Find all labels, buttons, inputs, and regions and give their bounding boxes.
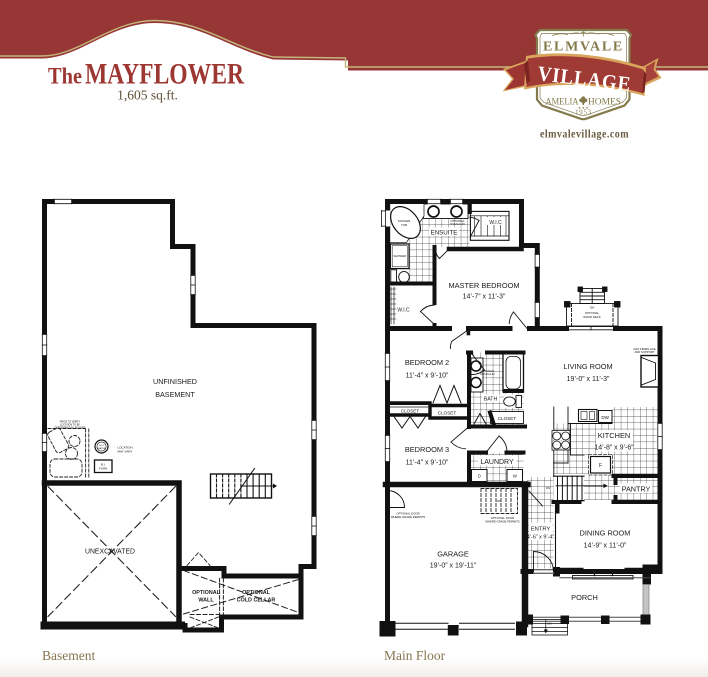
svg-text:COLD CELLAR: COLD CELLAR — [237, 598, 276, 604]
svg-text:4’-6” x 9’-4”: 4’-6” x 9’-4” — [527, 535, 554, 541]
svg-text:DN: DN — [497, 499, 501, 503]
svg-text:UNEXCAVATED: UNEXCAVATED — [85, 547, 135, 556]
svg-text:19’-0” x 19’-11”: 19’-0” x 19’-11” — [430, 563, 477, 570]
svg-text:LIVING ROOM: LIVING ROOM — [563, 362, 612, 371]
svg-text:14’-9” x 11’-0”: 14’-9” x 11’-0” — [584, 543, 627, 550]
svg-text:DW: DW — [601, 415, 609, 420]
svg-text:KITCHEN: KITCHEN — [598, 431, 630, 440]
svg-text:11’-4” x 9’-10”: 11’-4” x 9’-10” — [406, 460, 449, 467]
svg-text:AND SUPPORT: AND SUPPORT — [634, 350, 654, 354]
svg-text:ROUGH-IN: ROUGH-IN — [480, 372, 494, 376]
svg-text:FURN: FURN — [99, 467, 107, 471]
svg-text:DETERMINED BY BUILDER: DETERMINED BY BUILDER — [55, 427, 86, 430]
svg-text:D: D — [478, 474, 481, 479]
svg-text:CLOSET: CLOSET — [498, 416, 517, 421]
svg-text:BASEMENT: BASEMENT — [155, 390, 195, 399]
svg-text:DINING ROOM: DINING ROOM — [580, 529, 631, 538]
svg-text:W: W — [513, 474, 517, 479]
svg-text:CLOSET: CLOSET — [401, 409, 420, 414]
svg-text:BEDROOM 3: BEDROOM 3 — [405, 445, 449, 454]
svg-text:PANTRY: PANTRY — [622, 485, 651, 494]
svg-text:19’-0” x 11’-3”: 19’-0” x 11’-3” — [567, 376, 610, 383]
svg-text:MASTER BEDROOM: MASTER BEDROOM — [448, 281, 519, 290]
svg-text:11’-4” x 9’-10”: 11’-4” x 9’-10” — [406, 373, 449, 380]
svg-text:OPTIONAL: OPTIONAL — [192, 590, 221, 596]
svg-text:DN: DN — [590, 306, 594, 310]
svg-text:W.I.C: W.I.C — [397, 308, 410, 314]
svg-text:WHERE GRADE PERMITS: WHERE GRADE PERMITS — [485, 519, 519, 523]
svg-text:WALL: WALL — [198, 598, 214, 604]
svg-text:BATH: BATH — [484, 397, 498, 403]
svg-text:DN: DN — [546, 486, 550, 490]
svg-text:MAY VARY: MAY VARY — [118, 450, 133, 454]
svg-text:W.I.C: W.I.C — [489, 220, 502, 226]
svg-text:CLOSET: CLOSET — [438, 411, 457, 416]
svg-text:TUB: TUB — [401, 223, 407, 227]
svg-text:WHERE GRADE PERMITS: WHERE GRADE PERMITS — [391, 515, 425, 519]
svg-text:OPTIONAL: OPTIONAL — [242, 590, 271, 596]
svg-text:WATER: WATER — [98, 447, 106, 450]
svg-text:F: F — [599, 463, 602, 469]
svg-text:GARAGE: GARAGE — [437, 550, 469, 559]
svg-text:UNFINISHED: UNFINISHED — [153, 377, 197, 386]
svg-text:BEDROOM 2: BEDROOM 2 — [405, 358, 449, 367]
svg-text:LAUNDRY: LAUNDRY — [480, 459, 514, 466]
svg-text:14’-8” x 9’-6”: 14’-8” x 9’-6” — [594, 445, 634, 452]
svg-text:ROUGH-IN: ROUGH-IN — [450, 222, 464, 226]
svg-text:ENTRY: ENTRY — [531, 527, 551, 533]
svg-text:14’-7” x 11’-3”: 14’-7” x 11’-3” — [463, 294, 506, 301]
svg-text:SHOWER: SHOWER — [394, 254, 407, 258]
svg-text:WOOD DECK: WOOD DECK — [583, 315, 601, 319]
svg-text:DN: DN — [547, 622, 551, 626]
svg-text:ENSUITE: ENSUITE — [431, 230, 458, 237]
svg-text:HOT: HOT — [99, 445, 104, 447]
svg-text:PORCH: PORCH — [571, 593, 598, 602]
